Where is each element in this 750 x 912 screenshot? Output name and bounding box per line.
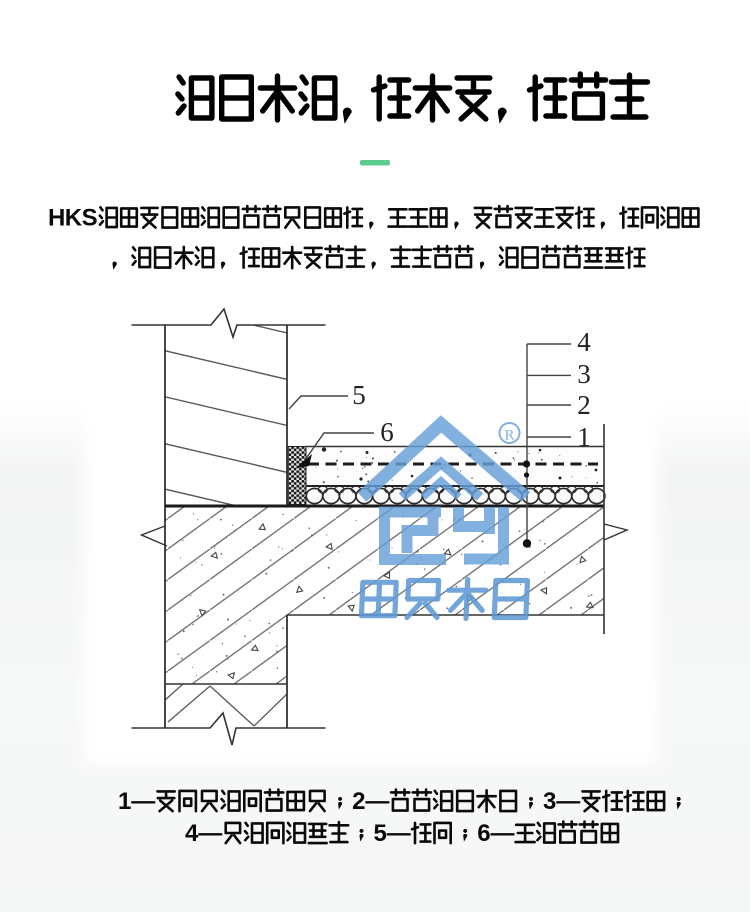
svg-text:H: H: [48, 205, 65, 232]
svg-text:6: 6: [477, 820, 490, 847]
svg-text:S: S: [82, 205, 98, 232]
svg-text:5: 5: [352, 380, 366, 410]
svg-text:1: 1: [577, 422, 591, 452]
svg-text:—: —: [365, 788, 389, 815]
svg-text:—: —: [556, 788, 580, 815]
svg-text:R: R: [504, 428, 514, 444]
svg-text:4: 4: [577, 327, 591, 357]
svg-text:2: 2: [577, 390, 591, 420]
svg-text:6: 6: [380, 417, 394, 447]
svg-text:—: —: [491, 820, 515, 847]
svg-text:5: 5: [374, 820, 387, 847]
svg-text:4: 4: [185, 820, 199, 847]
svg-text:1: 1: [118, 788, 131, 815]
svg-text:2: 2: [352, 788, 365, 815]
svg-text:—: —: [131, 788, 155, 815]
svg-text:—: —: [387, 820, 411, 847]
svg-text:K: K: [65, 205, 83, 232]
svg-text:3: 3: [543, 788, 556, 815]
svg-text:3: 3: [577, 359, 591, 389]
svg-text:—: —: [198, 820, 222, 847]
